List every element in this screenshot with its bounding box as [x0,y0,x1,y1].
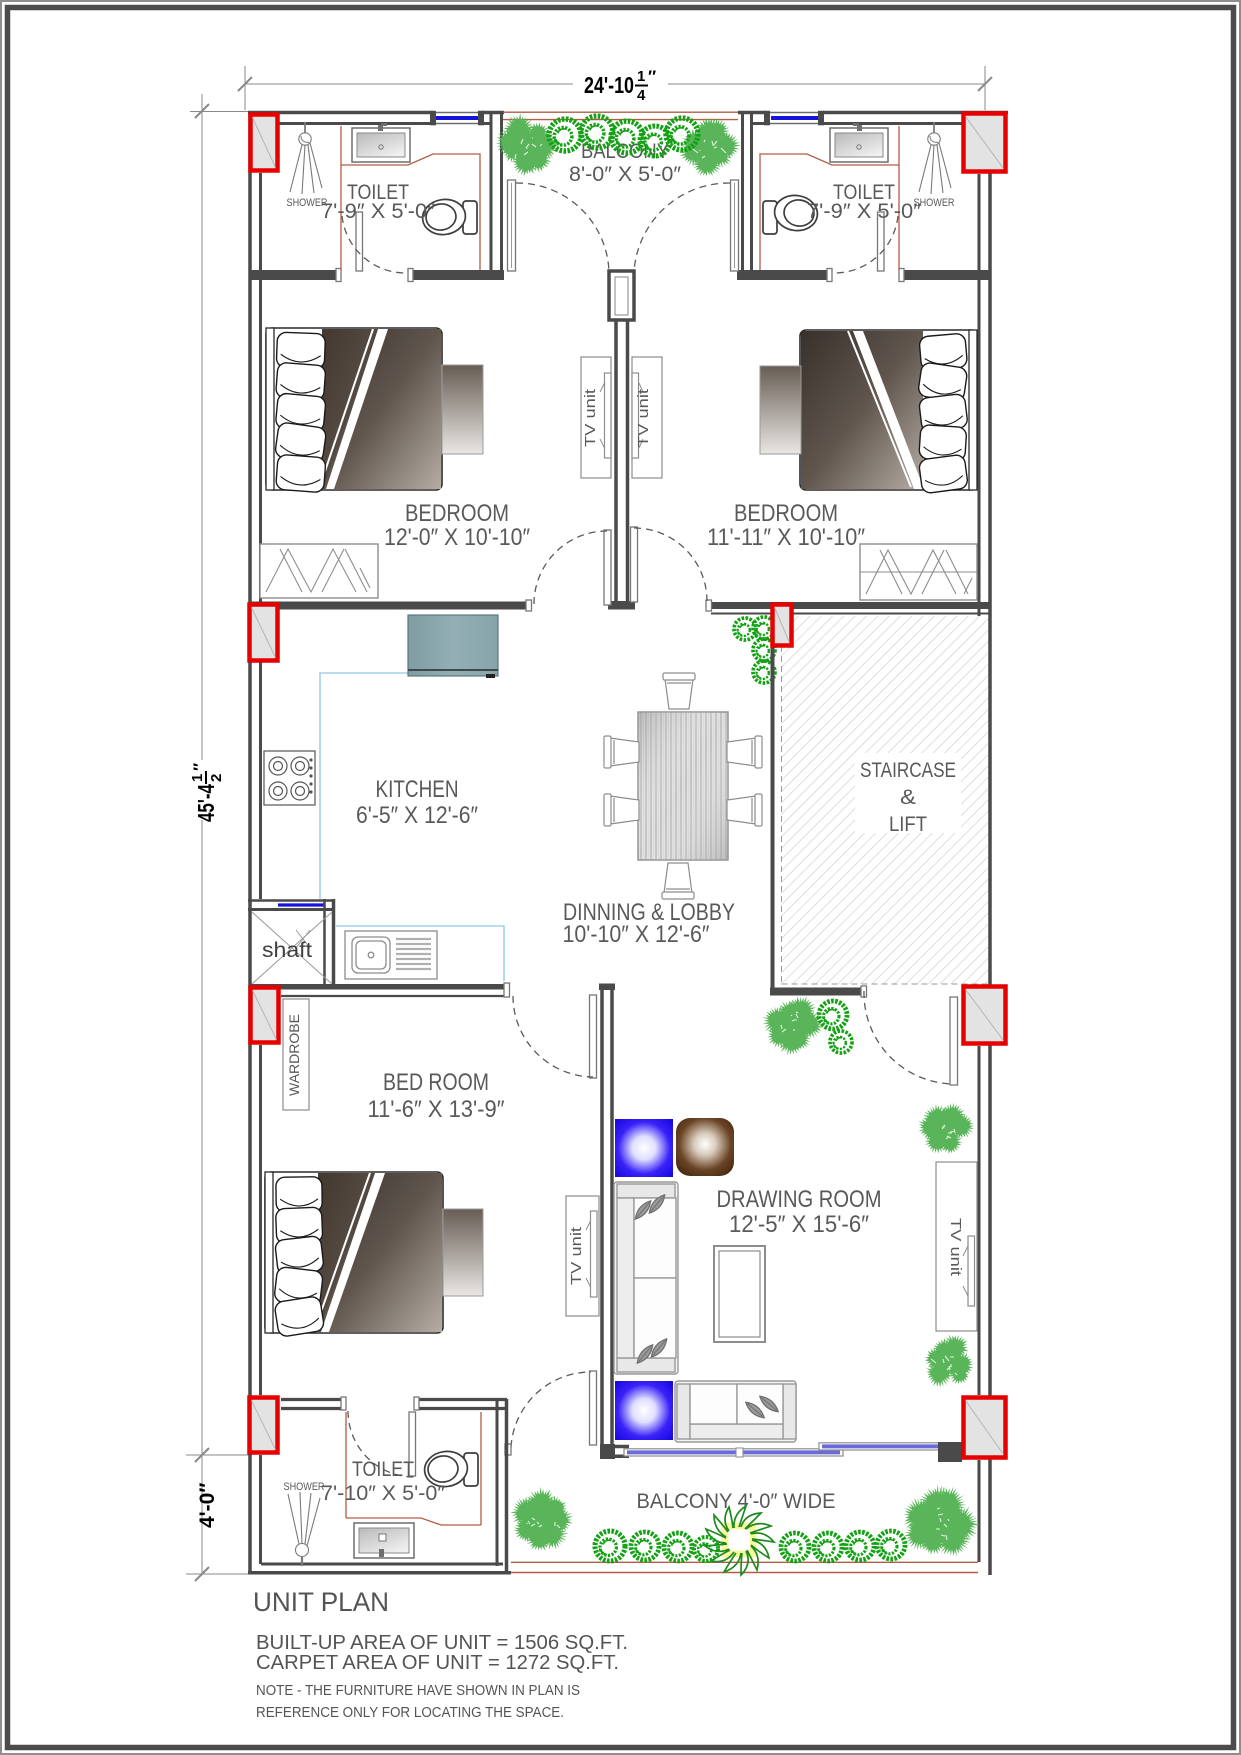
svg-text:10'-10″ X 12'-6″: 10'-10″ X 12'-6″ [563,921,710,948]
svg-text:BALCONY 4'-0″ WIDE: BALCONY 4'-0″ WIDE [637,1490,836,1513]
svg-text:TOILET: TOILET [352,1458,414,1481]
svg-text:11'-6″ X 13'-9″: 11'-6″ X 13'-9″ [368,1096,505,1123]
svg-text:″: ″ [190,763,209,771]
svg-text:CARPET AREA OF UNIT = 1272 SQ.: CARPET AREA OF UNIT = 1272 SQ.FT. [256,1651,619,1674]
svg-text:DRAWING ROOM: DRAWING ROOM [717,1186,882,1213]
svg-text:″: ″ [648,67,656,86]
svg-text:1: 1 [189,774,206,782]
svg-text:TV unit: TV unit [568,1226,585,1285]
svg-text:24'-10: 24'-10 [584,72,634,98]
svg-text:4: 4 [637,87,646,104]
svg-text:TV unit: TV unit [947,1218,964,1277]
svg-text:12'-0″ X 10'-10″: 12'-0″ X 10'-10″ [384,524,530,551]
svg-text:BED ROOM: BED ROOM [383,1069,489,1096]
svg-text:6'-5″ X 12'-6″: 6'-5″ X 12'-6″ [356,802,478,829]
svg-text:7'-9″ X 5'-0″: 7'-9″ X 5'-0″ [807,200,922,223]
svg-text:SHOWER: SHOWER [284,1481,325,1493]
svg-text:STAIRCASE: STAIRCASE [860,759,956,782]
svg-text:BEDROOM: BEDROOM [405,500,509,527]
svg-text:12'-5″ X 15'-6″: 12'-5″ X 15'-6″ [729,1211,869,1238]
svg-text:WARDROBE: WARDROBE [286,1014,302,1096]
svg-text:TV unit: TV unit [582,388,599,447]
svg-text:LIFT: LIFT [889,813,927,836]
svg-text:NOTE - THE FURNITURE HAVE SHOW: NOTE - THE FURNITURE HAVE SHOWN IN PLAN … [256,1682,580,1699]
svg-text:2: 2 [208,774,225,782]
svg-text:KITCHEN: KITCHEN [376,776,459,803]
svg-text:1: 1 [637,68,645,85]
svg-text:7'-9″ X 5'-0″: 7'-9″ X 5'-0″ [321,200,436,223]
svg-text:shaft: shaft [262,939,312,962]
svg-text:7'-10″ X 5'-0″: 7'-10″ X 5'-0″ [321,1482,446,1505]
svg-text:45'-4: 45'-4 [193,784,219,822]
svg-text:11'-11″ X 10'-10″: 11'-11″ X 10'-10″ [707,524,865,551]
svg-text:&: & [900,786,916,809]
svg-text:TV unit: TV unit [635,388,652,447]
svg-text:8'-0″ X 5'-0″: 8'-0″ X 5'-0″ [569,163,682,186]
svg-text:4'-0″: 4'-0″ [196,1483,219,1528]
svg-text:REFERENCE ONLY FOR LOCATING TH: REFERENCE ONLY FOR LOCATING THE SPACE. [256,1704,564,1721]
svg-text:BEDROOM: BEDROOM [734,500,838,527]
svg-text:UNIT PLAN: UNIT PLAN [253,1587,389,1617]
